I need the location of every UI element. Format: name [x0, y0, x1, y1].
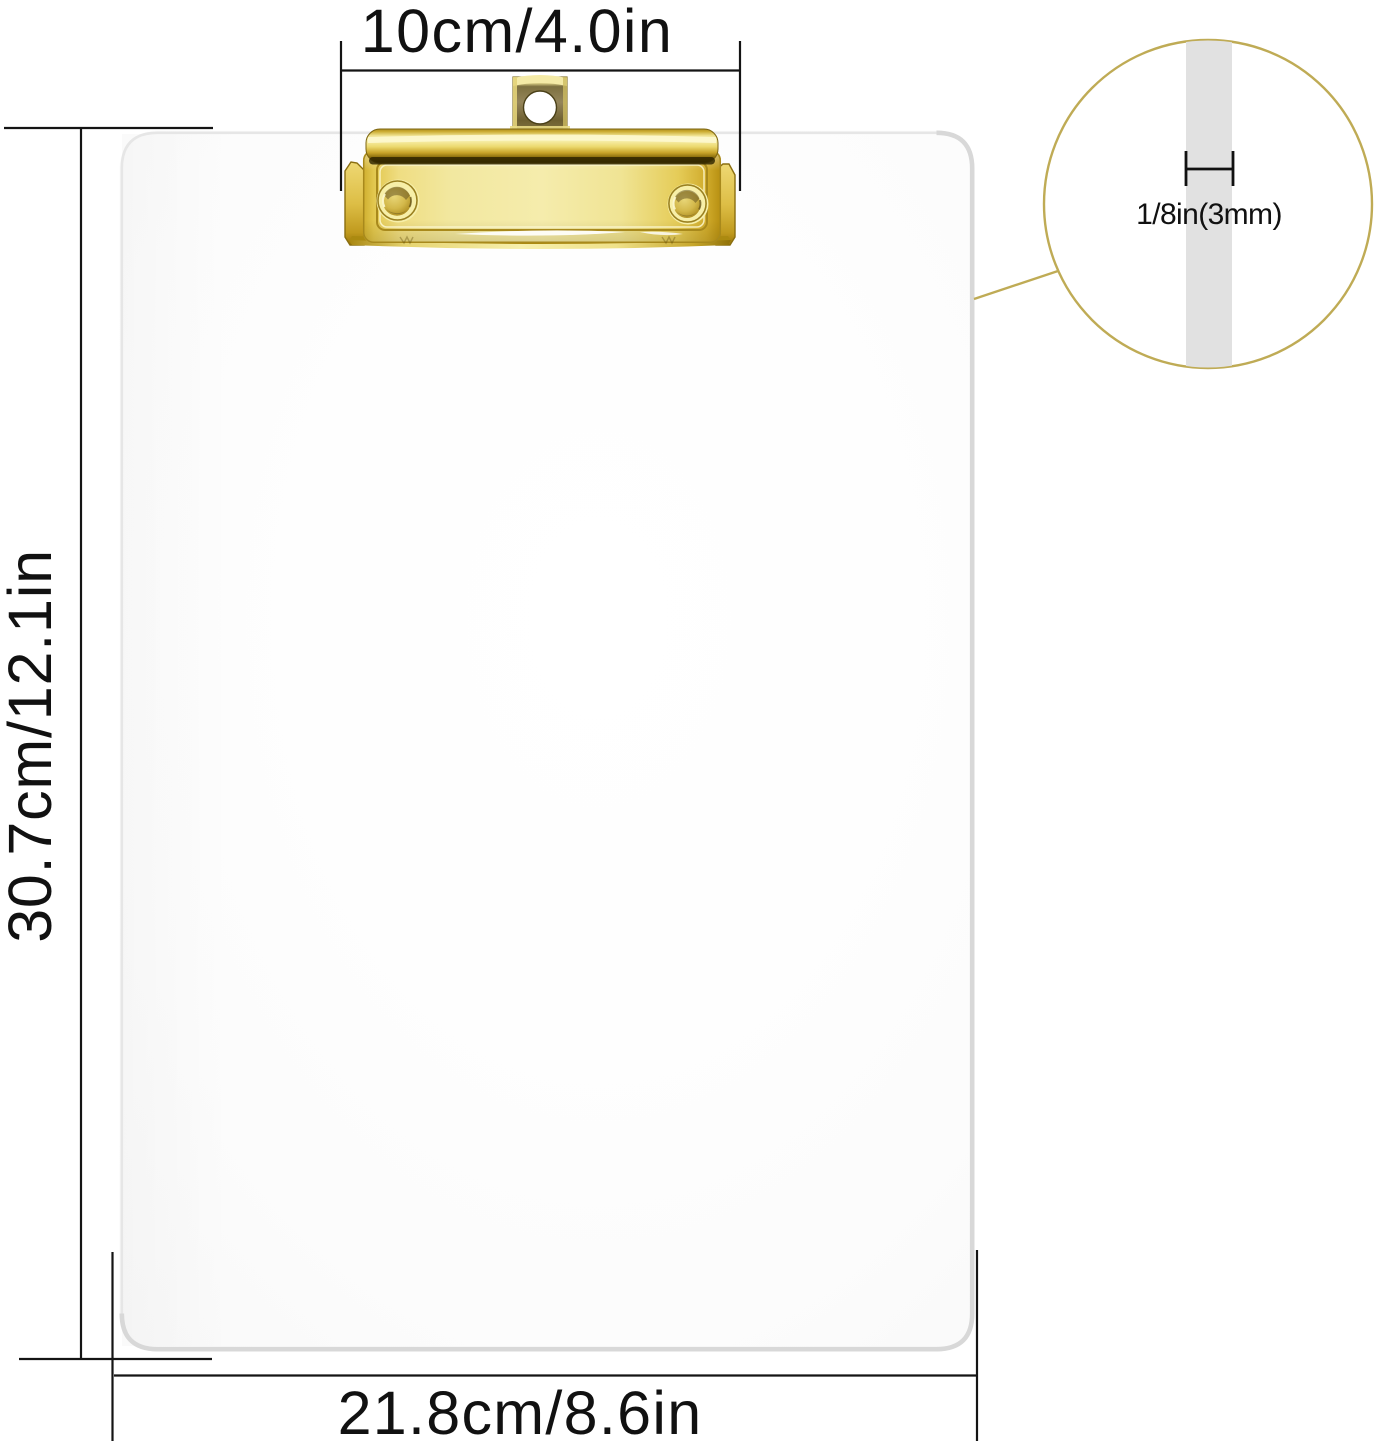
svg-text:1/8in(3mm): 1/8in(3mm): [1136, 198, 1282, 231]
svg-text:10cm/4.0in: 10cm/4.0in: [361, 0, 673, 65]
svg-text:30.7cm/12.1in: 30.7cm/12.1in: [0, 549, 64, 943]
svg-text:21.8cm/8.6in: 21.8cm/8.6in: [338, 1379, 703, 1447]
